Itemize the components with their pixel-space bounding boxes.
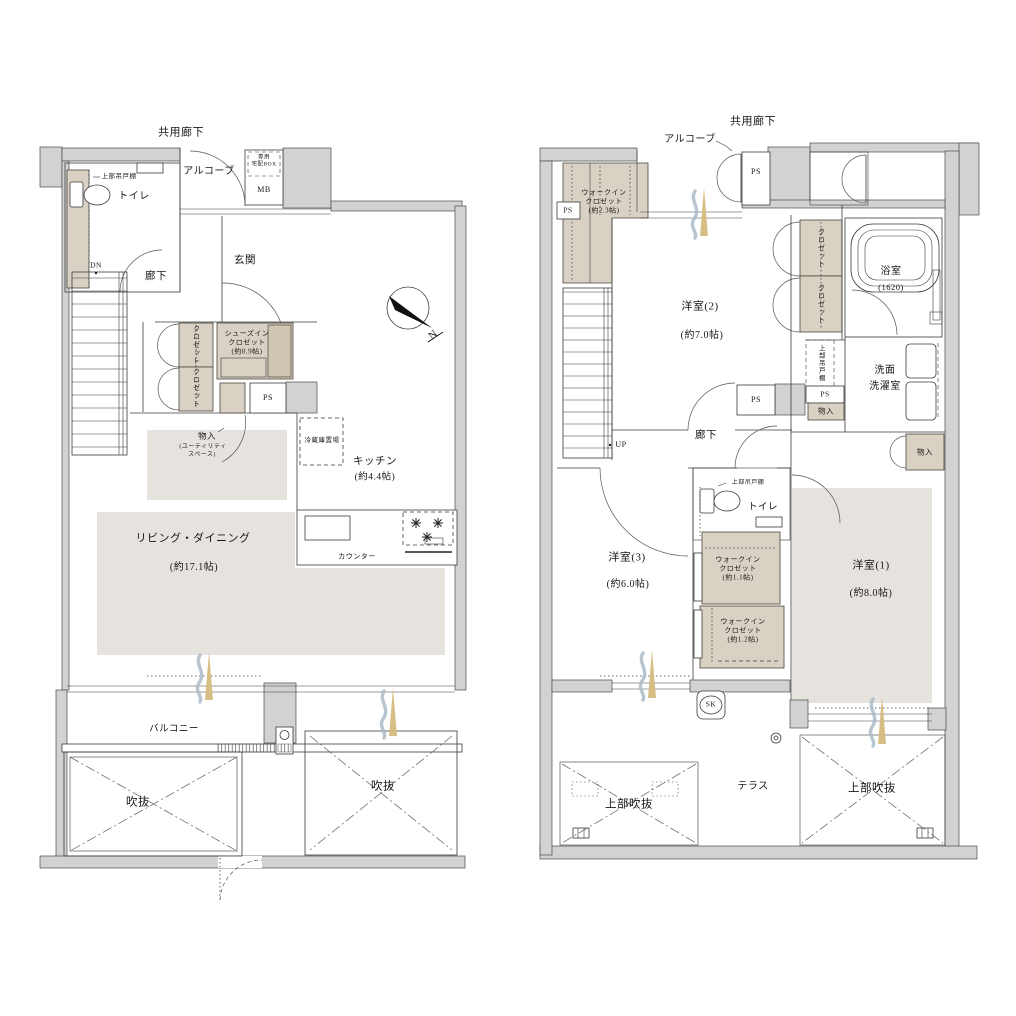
- bedroom3-door-arc: [600, 468, 688, 556]
- north-label: N: [426, 328, 440, 342]
- alcove-leader-line: [716, 141, 732, 151]
- label-ps-2f-mid: PS: [751, 396, 761, 404]
- label-void-right: 吹抜: [371, 781, 395, 793]
- stairs-1f: [72, 272, 127, 455]
- label-ps-2f-top: PS: [751, 168, 761, 176]
- label-alcove-1f: アルコーブ: [183, 167, 235, 177]
- label-utility-1: (ユーティリティ: [179, 444, 226, 450]
- label-wic23-1: ウォークイン: [582, 190, 627, 197]
- label-bedroom3-size: (約6.0帖): [607, 580, 650, 590]
- label-hallway-1f: 廊下: [145, 272, 167, 283]
- label-bedroom3: 洋室(3): [608, 553, 645, 564]
- label-kitchen-size: (約4.4帖): [355, 473, 396, 483]
- label-wic12-size: (約1.2帖): [728, 637, 759, 644]
- label-delivery-box-1: 専用: [258, 155, 270, 161]
- balcony-1f: [62, 676, 462, 754]
- label-meter-box: MB: [257, 186, 270, 194]
- label-bath-size: (1620): [878, 283, 904, 292]
- toilet-bowl-icon: [84, 185, 110, 205]
- label-bedroom1: 洋室(1): [852, 561, 889, 572]
- label-hallway-2f: 廊下: [695, 431, 717, 442]
- label-upper-cabinet-toilet-2f: 上部吊戸棚: [732, 480, 765, 486]
- label-closet-1f-b: クロゼット: [193, 368, 200, 408]
- label-monoire-2f-a: 物入: [818, 407, 834, 415]
- label-wic11-2: クロゼット: [719, 566, 757, 573]
- bath-door-arc: [852, 290, 897, 335]
- label-stairs-up: UP: [615, 441, 626, 449]
- toilet2-door-arc: [735, 426, 777, 468]
- label-upper-void-left: 上部吹抜: [605, 799, 653, 811]
- bedroom2-door-arc: [688, 383, 735, 430]
- bath-2f: [845, 218, 942, 337]
- label-delivery-box-2: 宅配BOX: [251, 162, 276, 168]
- label-utility-2: スペース): [188, 452, 216, 458]
- drain-icon: [573, 828, 589, 838]
- label-common-corridor-2f: 共用廊下: [730, 117, 776, 128]
- toilet-tank-icon-2f: [700, 489, 714, 513]
- label-balcony: バルコニー: [149, 725, 199, 735]
- front-door-arc: [190, 151, 245, 206]
- void-left-1f: [64, 752, 242, 856]
- label-shoes-closet-1: シューズイン: [225, 331, 270, 338]
- label-genkan: 玄関: [234, 256, 256, 267]
- label-monoire-2f-b: 物入: [917, 448, 933, 456]
- label-upper-cabinet-2f: 上部吊戸棚: [817, 344, 824, 382]
- label-wic11-size: (約1.1帖): [723, 575, 754, 582]
- label-counter: カウンター: [338, 554, 376, 561]
- label-common-corridor-1f: 共用廊下: [158, 128, 204, 139]
- label-wic11-1: ウォークイン: [716, 557, 761, 564]
- stairs-2f: [563, 288, 612, 458]
- label-living-dining-size: (約17.1帖): [170, 563, 218, 573]
- label-wic12-2: クロゼット: [724, 628, 762, 635]
- label-ps-1f: PS: [263, 394, 273, 402]
- label-wic23-2: クロゼット: [585, 199, 623, 206]
- washroom-2f: [737, 337, 945, 432]
- label-bath: 浴室: [881, 267, 902, 277]
- label-void-left: 吹抜: [126, 797, 150, 809]
- toilet-tank-icon: [70, 182, 83, 207]
- compass-icon: N: [387, 287, 443, 342]
- label-fridge-space: 冷蔵庫置場: [305, 438, 340, 445]
- label-closet-2f-a: クロゼット: [818, 228, 825, 268]
- label-shoes-closet-2: クロゼット: [228, 340, 266, 347]
- label-washroom-1: 洗面: [875, 366, 896, 376]
- label-upper-void-right: 上部吹抜: [848, 783, 896, 795]
- label-toilet-2f: トイレ: [748, 503, 778, 513]
- label-stairs-down: DN: [90, 261, 102, 269]
- label-closet-2f-b: クロゼット: [818, 284, 825, 324]
- label-upper-cabinet-1f: 上部吊戸棚: [102, 174, 137, 181]
- floorplan-canvas: N: [0, 0, 1016, 1016]
- label-ps-2f-right: PS: [820, 390, 829, 398]
- toilet-bowl-icon-2f: [714, 491, 740, 511]
- label-ps-2f-left: PS: [563, 206, 572, 214]
- floorplan-svg: N: [0, 0, 1016, 1016]
- label-terrace: テラス: [737, 782, 768, 792]
- label-wic23-size: (約2.3帖): [589, 208, 620, 215]
- label-shoes-closet-size: (約0.9帖): [232, 349, 263, 356]
- bedroom2-area-2f: [612, 205, 842, 460]
- sink-icon: [305, 516, 350, 540]
- label-monoire-1f: 物入: [198, 432, 216, 441]
- label-bedroom2-size: (約7.0帖): [681, 331, 724, 341]
- label-wic12-1: ウォークイン: [721, 619, 766, 626]
- faucet-icon: [771, 733, 781, 743]
- label-alcove-2f: アルコーブ: [664, 135, 716, 145]
- label-closet-1f-a: クロゼット: [193, 325, 200, 365]
- label-bedroom1-size: (約8.0帖): [850, 589, 893, 599]
- label-washroom-2: 洗濯室: [869, 382, 901, 392]
- washer-icon: [906, 344, 936, 378]
- plan-2f: [540, 141, 979, 859]
- label-sk-sink: SK: [706, 700, 717, 708]
- label-kitchen: キッチン: [353, 457, 397, 468]
- wic-23-2f: [557, 163, 648, 283]
- label-bedroom2: 洋室(2): [681, 302, 718, 313]
- label-living-dining: リビング・ダイニング: [136, 534, 251, 545]
- ps-shaft-2f-top: [742, 152, 770, 205]
- vanity-icon: [906, 382, 936, 420]
- label-toilet-1f: トイレ: [118, 192, 150, 202]
